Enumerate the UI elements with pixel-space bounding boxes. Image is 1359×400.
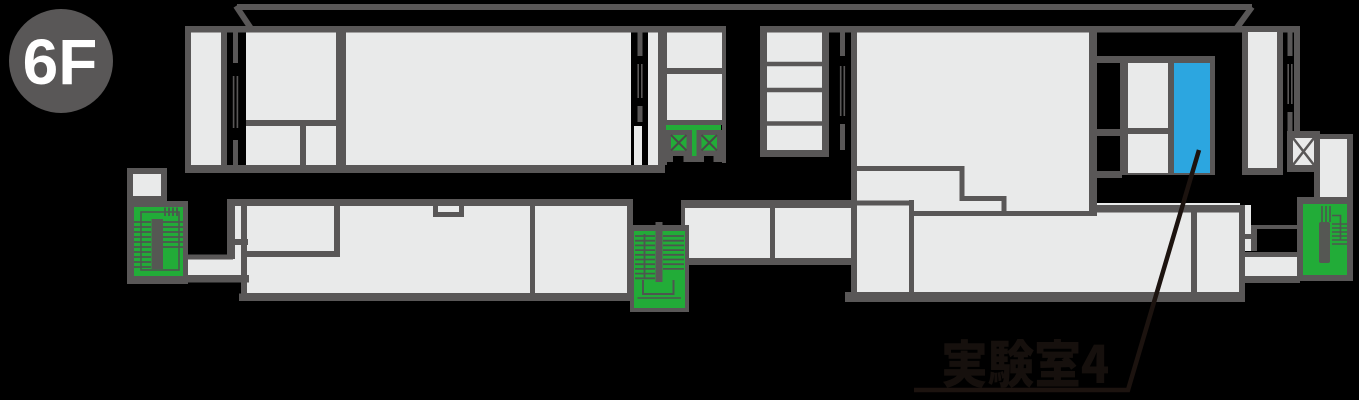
svg-text:6F: 6F [23, 26, 98, 98]
